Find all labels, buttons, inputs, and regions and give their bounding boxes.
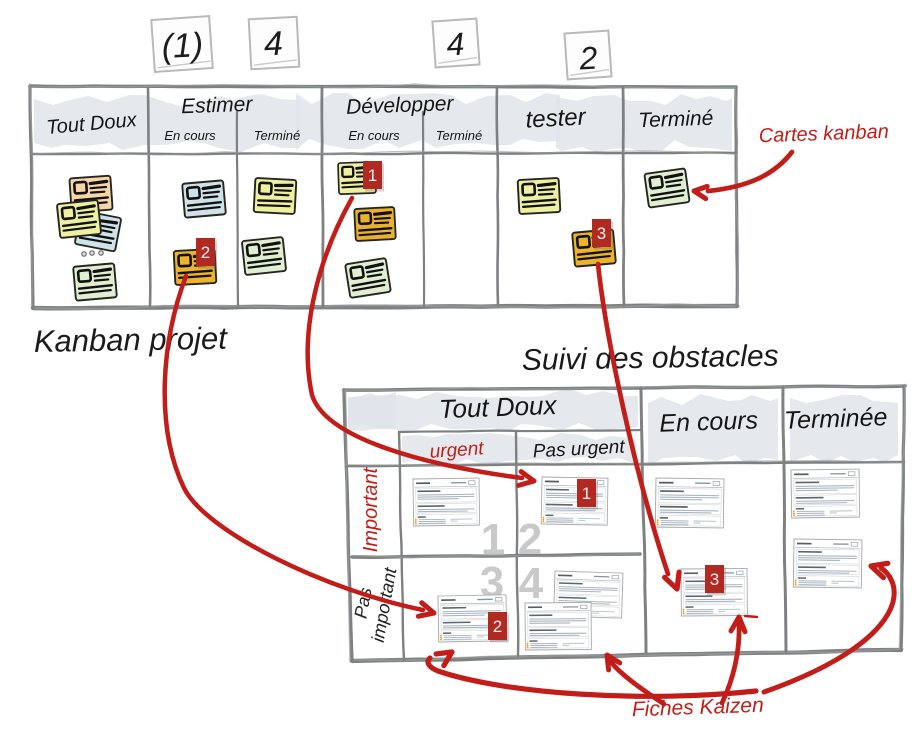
svg-text:Important: Important [360,466,382,552]
svg-text:1: 1 [368,166,377,185]
svg-text:3: 3 [597,224,606,243]
svg-text:(1): (1) [161,26,204,66]
svg-text:Tout Doux: Tout Doux [438,390,558,424]
svg-text:Terminée: Terminée [784,403,888,435]
svg-text:3: 3 [710,570,719,589]
svg-text:Estimer: Estimer [181,93,254,119]
svg-text:En cours: En cours [348,128,400,143]
svg-text:En cours: En cours [164,128,216,143]
svg-text:Développer: Développer [346,92,455,119]
svg-text:1: 1 [582,484,591,503]
svg-text:En cours: En cours [659,406,759,437]
svg-text:tester: tester [525,103,587,133]
svg-text:urgent: urgent [429,438,485,463]
svg-text:4: 4 [519,559,544,608]
svg-text:Terminé: Terminé [436,128,482,143]
svg-text:4: 4 [446,26,466,63]
svg-text:1: 1 [481,515,505,564]
svg-text:2: 2 [201,243,210,262]
svg-text:2: 2 [578,40,599,77]
svg-text:4: 4 [263,25,284,64]
svg-text:2: 2 [493,617,502,636]
svg-text:Kanban projet: Kanban projet [34,321,229,359]
svg-text:Cartes kanban: Cartes kanban [758,121,889,148]
svg-text:Terminé: Terminé [638,107,714,133]
svg-text:2: 2 [518,515,542,564]
svg-text:Suivi des obstacles: Suivi des obstacles [522,340,779,377]
svg-text:Terminé: Terminé [254,128,300,143]
